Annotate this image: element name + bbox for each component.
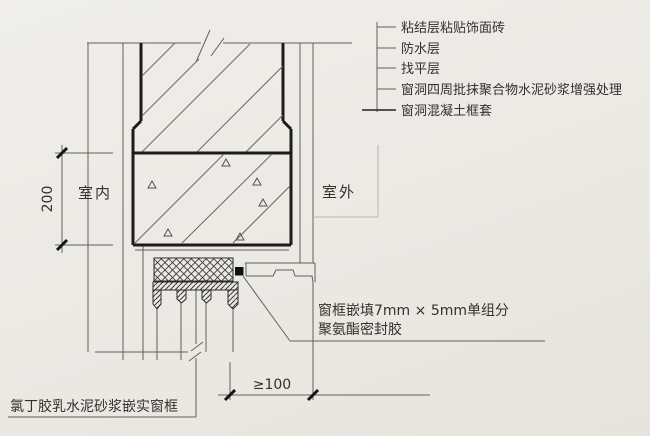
exterior-soffit-drip (245, 263, 315, 282)
callout-concrete-frame: 窗洞混凝土框套 (401, 103, 492, 119)
concrete-hatch (135, 154, 290, 243)
right-callouts: 粘结层粘贴饰面砖 防水层 找平层 窗洞四周批抹聚合物水泥砂浆增强处理 窗洞混凝土… (362, 21, 622, 119)
brick-wall-section (133, 43, 291, 152)
dim-100-text: ≥100 (253, 377, 291, 393)
sealant-block (235, 267, 244, 276)
wall-top-edge (87, 30, 352, 62)
bottom-callout-text: 氯丁胶乳水泥砂浆嵌实窗框 (10, 398, 178, 415)
exterior-room-label: 室外 (322, 183, 356, 201)
callout-waterproof-layer: 防水层 (401, 41, 440, 57)
sealant-callout-line2: 聚氨酯密封胶 (318, 321, 402, 338)
mortar-packing-band (154, 258, 233, 281)
bottom-callout: 氯丁胶乳水泥砂浆嵌实窗框 (8, 398, 196, 417)
callout-leveling-layer: 找平层 (401, 62, 440, 77)
detail-section-svg: 200 ≥100 室内 室外 粘结层粘贴饰面砖 防水层 找平层 窗洞四周批抹聚合… (0, 0, 650, 436)
sealant-callout: 窗框嵌填7mm × 5mm单组分 聚氨酯密封胶 (243, 276, 545, 341)
sealant-callout-line1: 窗框嵌填7mm × 5mm单组分 (318, 302, 509, 319)
brick-hatch (142, 43, 283, 152)
exterior-finish-lines (300, 43, 378, 263)
dim-200-text: 200 (40, 186, 56, 213)
construction-detail-drawing: 200 ≥100 室内 室外 粘结层粘贴饰面砖 防水层 找平层 窗洞四周批抹聚合… (0, 0, 650, 436)
frame-centre-line (189, 290, 203, 417)
callout-polymer-mortar-reinforcement: 窗洞四周批抹聚合物水泥砂浆增强处理 (401, 82, 622, 98)
concrete-frame-section (133, 129, 291, 250)
interior-room-label: 室内 (78, 184, 112, 202)
callout-tile-adhesive-layer: 粘结层粘贴饰面砖 (401, 21, 505, 36)
